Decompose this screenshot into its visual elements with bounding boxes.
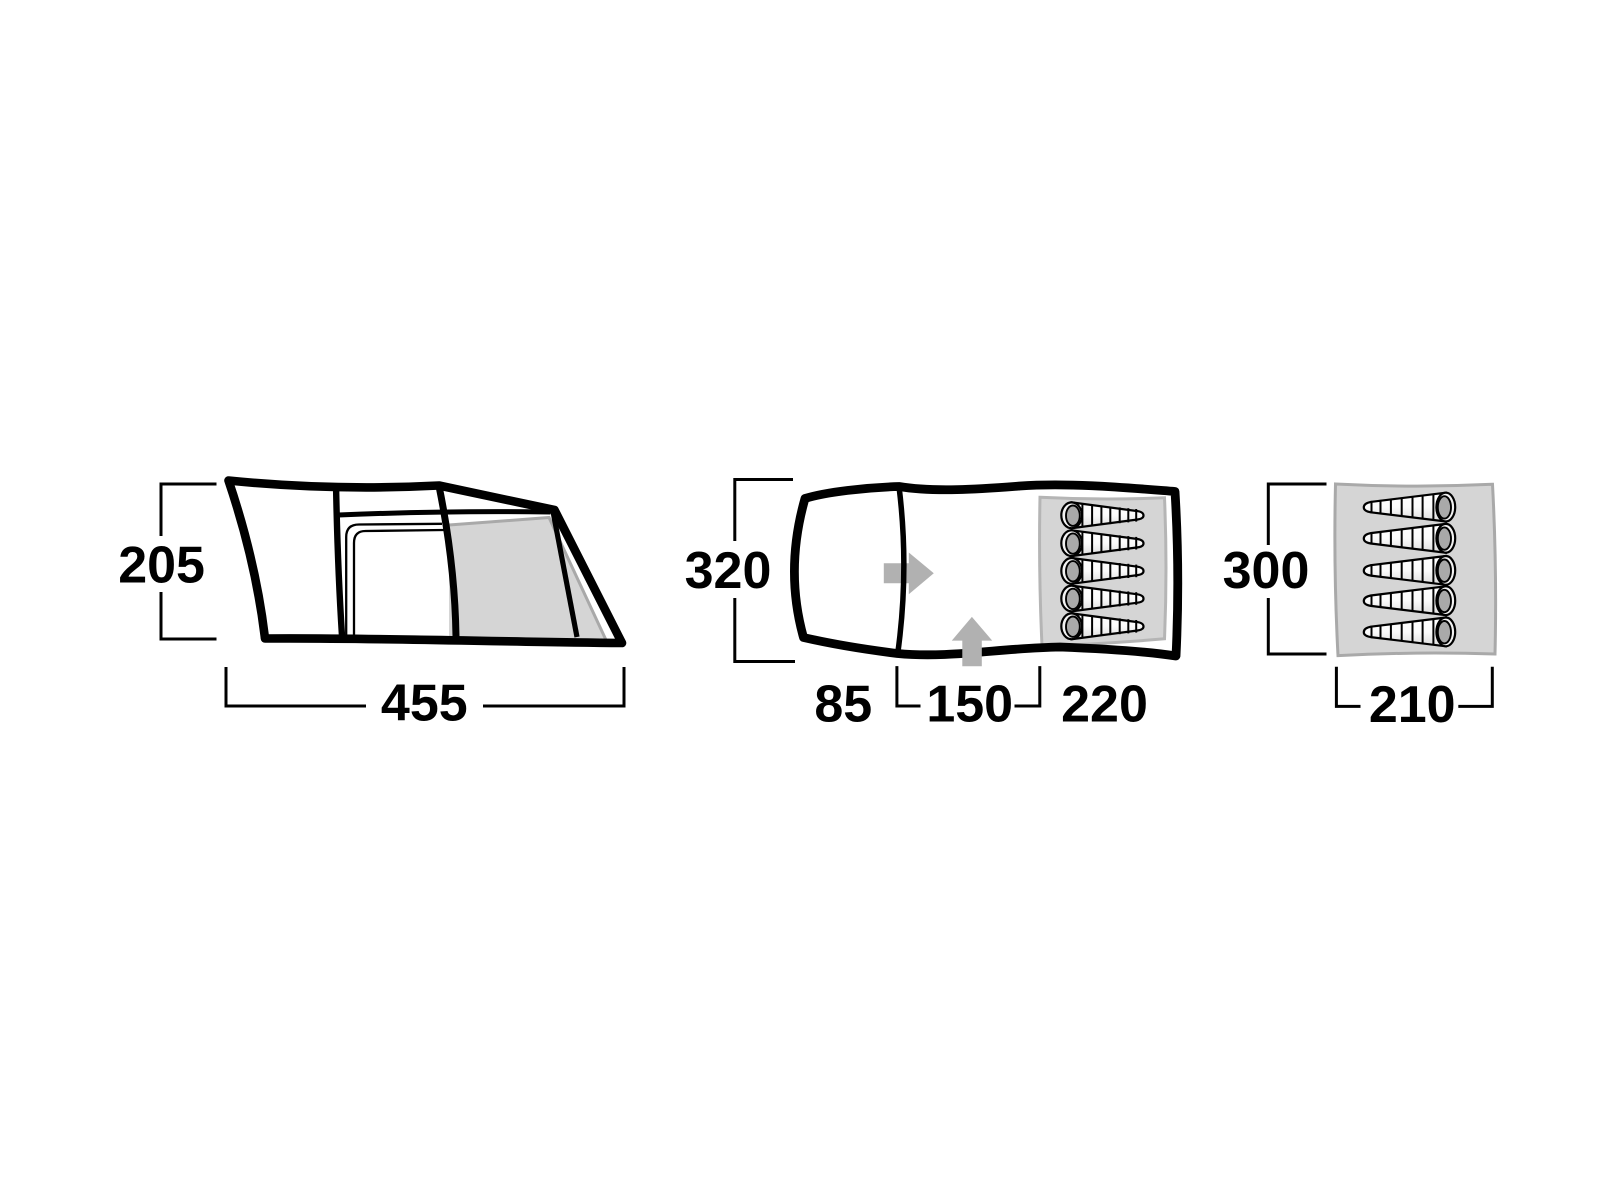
svg-text:85: 85 bbox=[814, 676, 872, 734]
svg-text:320: 320 bbox=[685, 542, 772, 600]
svg-text:300: 300 bbox=[1223, 542, 1310, 600]
svg-text:150: 150 bbox=[926, 676, 1013, 734]
svg-text:220: 220 bbox=[1061, 676, 1148, 734]
svg-text:210: 210 bbox=[1369, 676, 1456, 734]
svg-text:455: 455 bbox=[381, 675, 468, 733]
svg-text:205: 205 bbox=[118, 537, 205, 595]
